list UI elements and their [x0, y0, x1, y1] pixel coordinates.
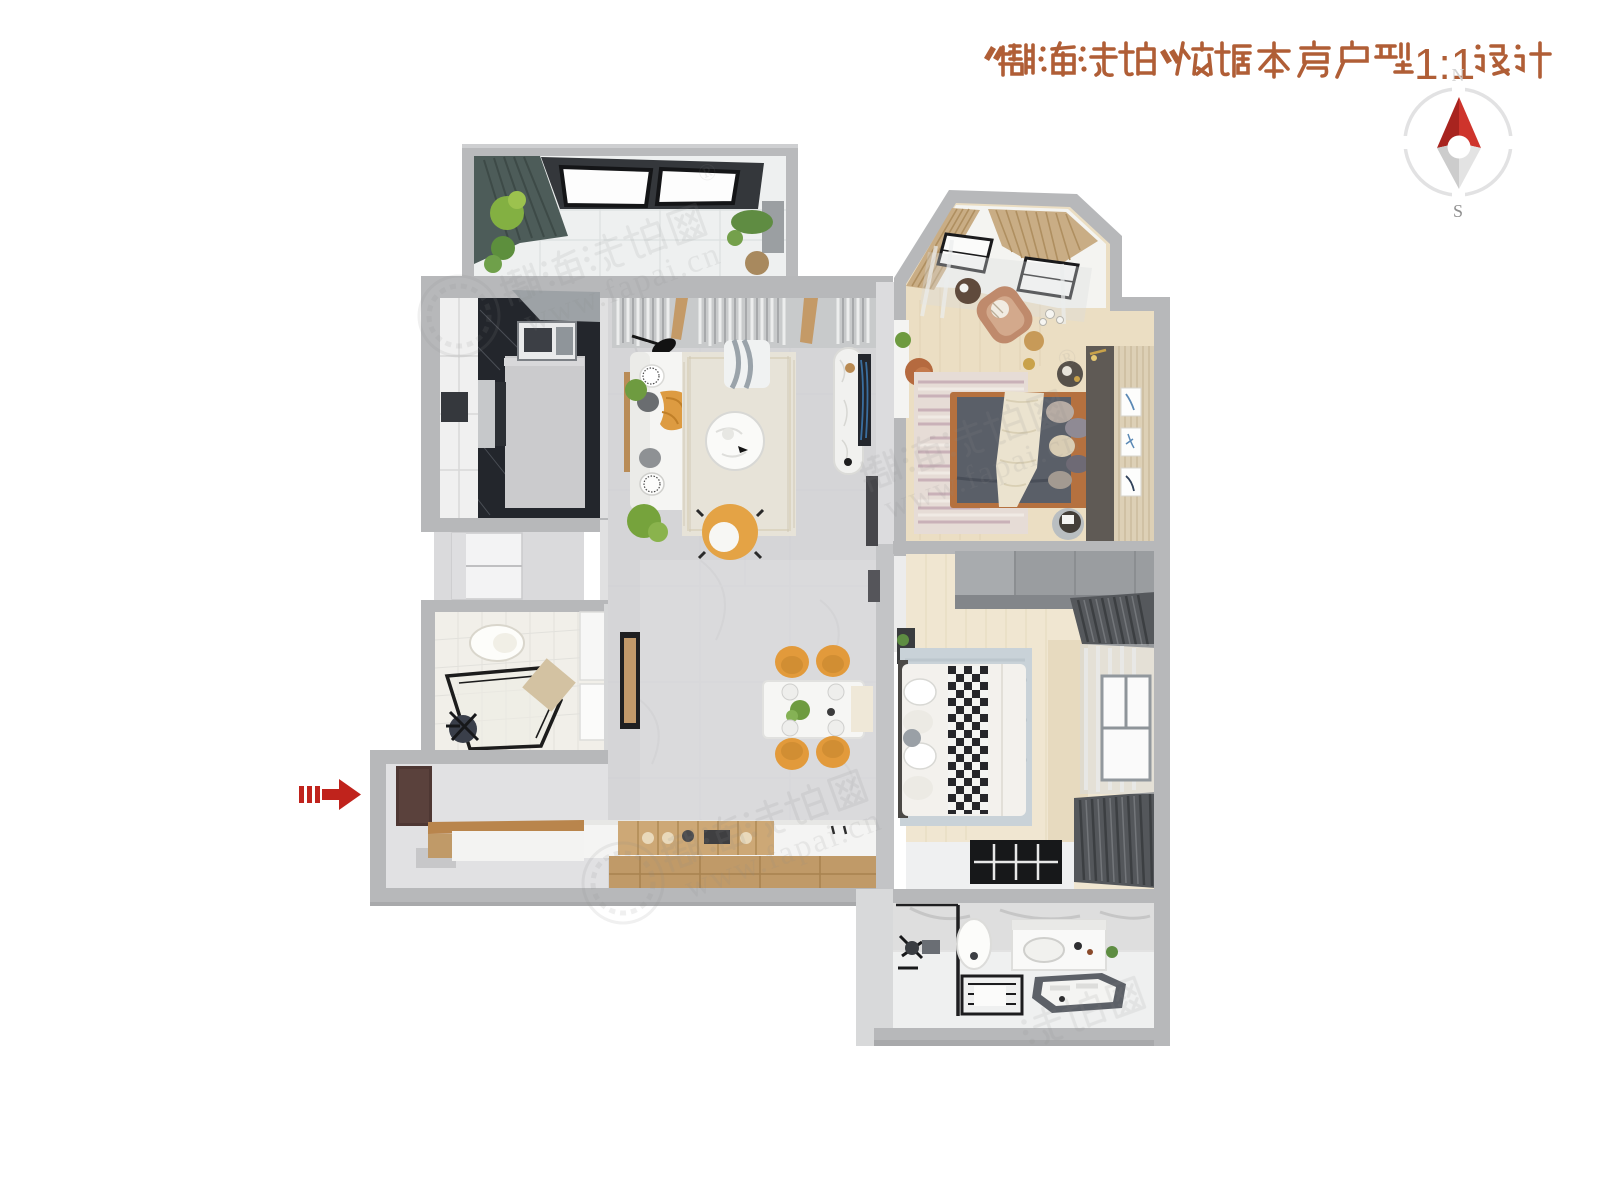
svg-text:S: S: [1453, 201, 1463, 221]
svg-text:1:1: 1:1: [1414, 40, 1475, 89]
svg-text:N: N: [1452, 65, 1465, 85]
